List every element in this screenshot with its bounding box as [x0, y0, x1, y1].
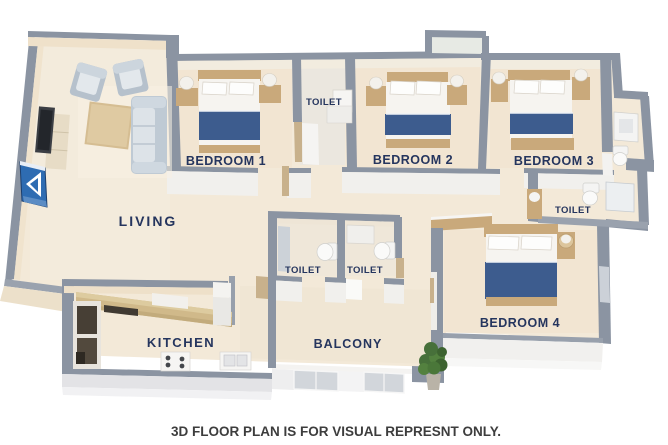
svg-text:BEDROOM 1: BEDROOM 1 — [186, 154, 266, 168]
svg-text:BEDROOM 3: BEDROOM 3 — [514, 154, 594, 168]
svg-text:TOILET: TOILET — [306, 97, 342, 108]
svg-text:LIVING: LIVING — [119, 213, 178, 229]
svg-text:TOILET: TOILET — [347, 265, 383, 276]
svg-text:TOILET: TOILET — [555, 205, 591, 216]
svg-text:BEDROOM 2: BEDROOM 2 — [373, 153, 453, 167]
svg-text:BEDROOM 4: BEDROOM 4 — [480, 316, 560, 330]
svg-text:KITCHEN: KITCHEN — [147, 335, 215, 350]
svg-text:3D FLOOR PLAN IS FOR VISUAL RE: 3D FLOOR PLAN IS FOR VISUAL REPRESNT ONL… — [171, 424, 501, 439]
svg-text:TOILET: TOILET — [285, 265, 321, 276]
svg-text:BALCONY: BALCONY — [314, 337, 383, 351]
